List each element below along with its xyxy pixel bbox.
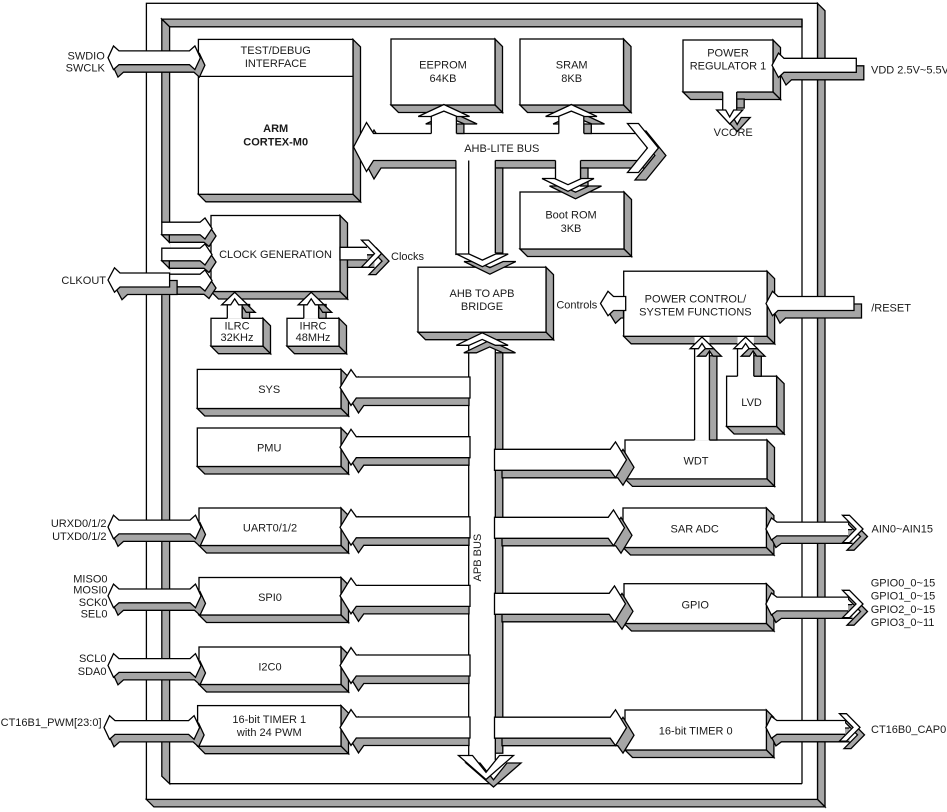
svg-text:REGULATOR 1: REGULATOR 1: [690, 61, 767, 73]
svg-text:64KB: 64KB: [430, 73, 457, 85]
svg-text:SRAM: SRAM: [556, 60, 588, 72]
svg-text:SAR ADC: SAR ADC: [671, 524, 719, 536]
svg-text:AHB TO APB: AHB TO APB: [449, 288, 514, 300]
svg-text:ILRC: ILRC: [224, 320, 249, 332]
svg-text:SPI0: SPI0: [258, 592, 282, 604]
svg-text:GPIO1_0~15: GPIO1_0~15: [871, 591, 936, 603]
svg-text:APB BUS: APB BUS: [472, 534, 484, 582]
svg-text:TEST/DEBUG: TEST/DEBUG: [241, 45, 311, 57]
svg-text:48MHz: 48MHz: [296, 332, 331, 344]
svg-text:URXD0/1/2: URXD0/1/2: [51, 518, 107, 530]
svg-text:Boot ROM: Boot ROM: [545, 210, 596, 222]
svg-text:POWER: POWER: [707, 47, 749, 59]
svg-text:CT16B0_CAP0: CT16B0_CAP0: [871, 724, 946, 736]
svg-text:Clocks: Clocks: [391, 251, 425, 263]
svg-text:I2C0: I2C0: [258, 662, 281, 674]
svg-text:8KB: 8KB: [561, 73, 582, 85]
svg-text:LVD: LVD: [741, 397, 762, 409]
svg-text:SCL0: SCL0: [79, 653, 107, 665]
svg-text:SEL0: SEL0: [81, 608, 108, 620]
svg-text:SYSTEM FUNCTIONS: SYSTEM FUNCTIONS: [639, 307, 751, 319]
svg-text:GPIO: GPIO: [681, 599, 709, 611]
svg-text:PMU: PMU: [257, 443, 282, 455]
svg-text:16-bit TIMER 1: 16-bit TIMER 1: [232, 714, 306, 726]
svg-text:EEPROM: EEPROM: [419, 60, 467, 72]
svg-text:GPIO0_0~15: GPIO0_0~15: [871, 577, 936, 589]
svg-text:32KHz: 32KHz: [220, 332, 253, 344]
svg-text:SWDIO: SWDIO: [68, 50, 106, 62]
svg-text:16-bit TIMER 0: 16-bit TIMER 0: [659, 726, 733, 738]
svg-text:/RESET: /RESET: [871, 302, 911, 314]
svg-text:SYS: SYS: [258, 384, 280, 396]
svg-text:GPIO3_0~11: GPIO3_0~11: [871, 617, 935, 629]
svg-text:UART0/1/2: UART0/1/2: [243, 523, 297, 535]
svg-text:INTERFACE: INTERFACE: [245, 58, 307, 70]
svg-text:SDA0: SDA0: [78, 666, 107, 678]
svg-text:CLOCK GENERATION: CLOCK GENERATION: [219, 249, 332, 261]
svg-text:MOSI0: MOSI0: [73, 584, 107, 596]
svg-text:CORTEX-M0: CORTEX-M0: [243, 137, 308, 149]
svg-text:VDD 2.5V~5.5V: VDD 2.5V~5.5V: [871, 65, 947, 77]
svg-text:ARM: ARM: [263, 123, 288, 135]
svg-text:with 24 PWM: with 24 PWM: [236, 727, 302, 739]
svg-text:CT16B1_PWM[23:0]: CT16B1_PWM[23:0]: [1, 717, 102, 729]
svg-text:UTXD0/1/2: UTXD0/1/2: [52, 531, 106, 543]
svg-text:IHRC: IHRC: [300, 320, 327, 332]
svg-text:Controls: Controls: [556, 300, 597, 312]
svg-text:AIN0~AIN15: AIN0~AIN15: [872, 523, 933, 535]
svg-text:GPIO2_0~15: GPIO2_0~15: [871, 604, 936, 616]
svg-text:WDT: WDT: [683, 456, 708, 468]
svg-text:BRIDGE: BRIDGE: [461, 301, 503, 313]
svg-text:POWER CONTROL/: POWER CONTROL/: [645, 294, 747, 306]
svg-text:SWCLK: SWCLK: [66, 62, 106, 74]
svg-text:AHB-LITE BUS: AHB-LITE BUS: [464, 143, 539, 155]
svg-text:VCORE: VCORE: [714, 127, 753, 139]
svg-text:CLKOUT: CLKOUT: [61, 275, 106, 287]
svg-text:SCK0: SCK0: [79, 597, 108, 609]
svg-text:3KB: 3KB: [561, 223, 582, 235]
